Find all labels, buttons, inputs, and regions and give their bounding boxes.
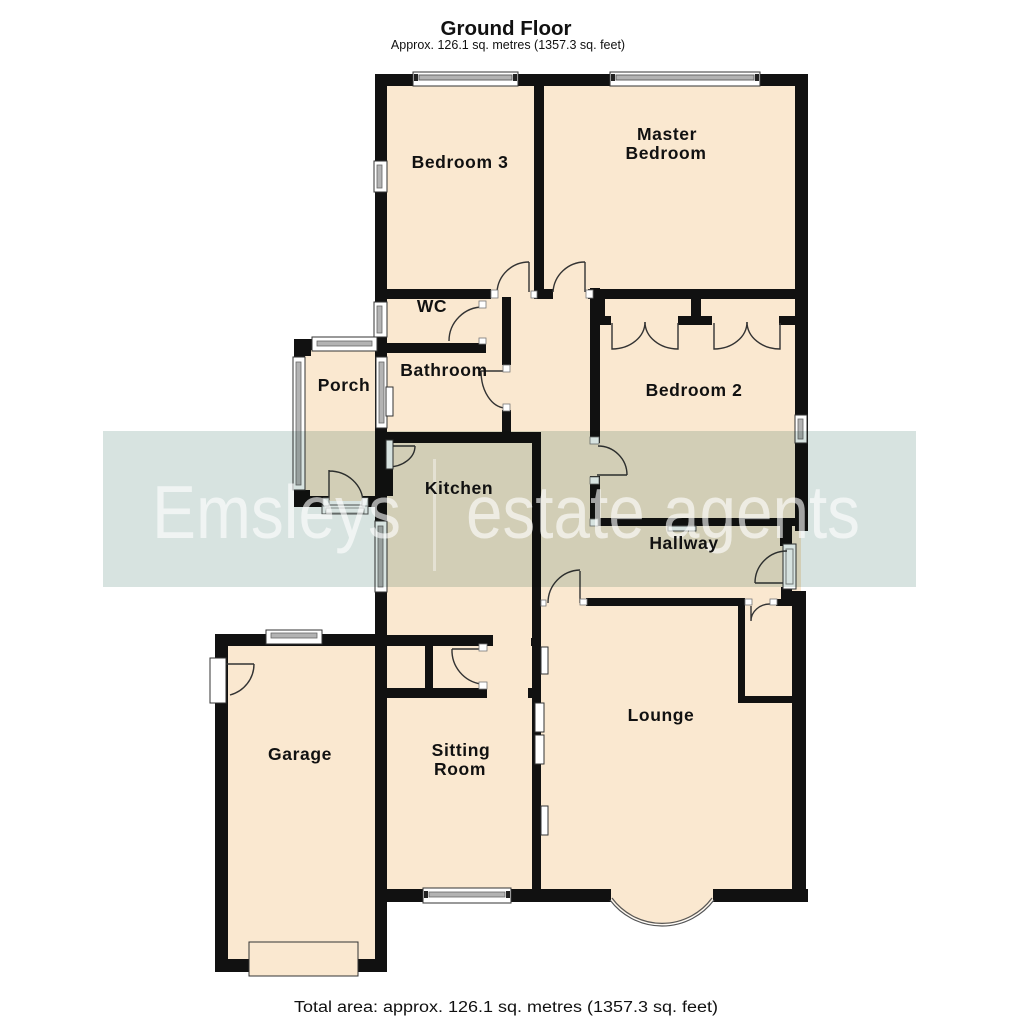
svg-text:Ground Floor: Ground Floor bbox=[441, 17, 572, 40]
svg-text:WC: WC bbox=[417, 296, 447, 316]
svg-text:Porch: Porch bbox=[318, 375, 371, 395]
svg-text:Lounge: Lounge bbox=[628, 705, 695, 725]
svg-text:Total area: approx. 126.1 sq.: Total area: approx. 126.1 sq. metres (13… bbox=[294, 999, 718, 1016]
svg-text:Bathroom: Bathroom bbox=[400, 360, 487, 380]
svg-text:Hallway: Hallway bbox=[649, 533, 718, 553]
svg-text:Master: Master bbox=[637, 124, 697, 144]
svg-text:Sitting: Sitting bbox=[432, 740, 491, 760]
svg-text:Bedroom 2: Bedroom 2 bbox=[646, 380, 743, 400]
svg-text:Approx. 126.1 sq. metres (1357: Approx. 126.1 sq. metres (1357.3 sq. fee… bbox=[391, 38, 625, 52]
svg-text:Bedroom 3: Bedroom 3 bbox=[412, 152, 509, 172]
svg-text:Garage: Garage bbox=[268, 744, 332, 764]
svg-text:Emsleys: Emsleys bbox=[152, 470, 401, 554]
svg-text:Kitchen: Kitchen bbox=[425, 478, 493, 498]
svg-text:Bedroom: Bedroom bbox=[625, 143, 706, 163]
svg-text:Room: Room bbox=[434, 759, 486, 779]
